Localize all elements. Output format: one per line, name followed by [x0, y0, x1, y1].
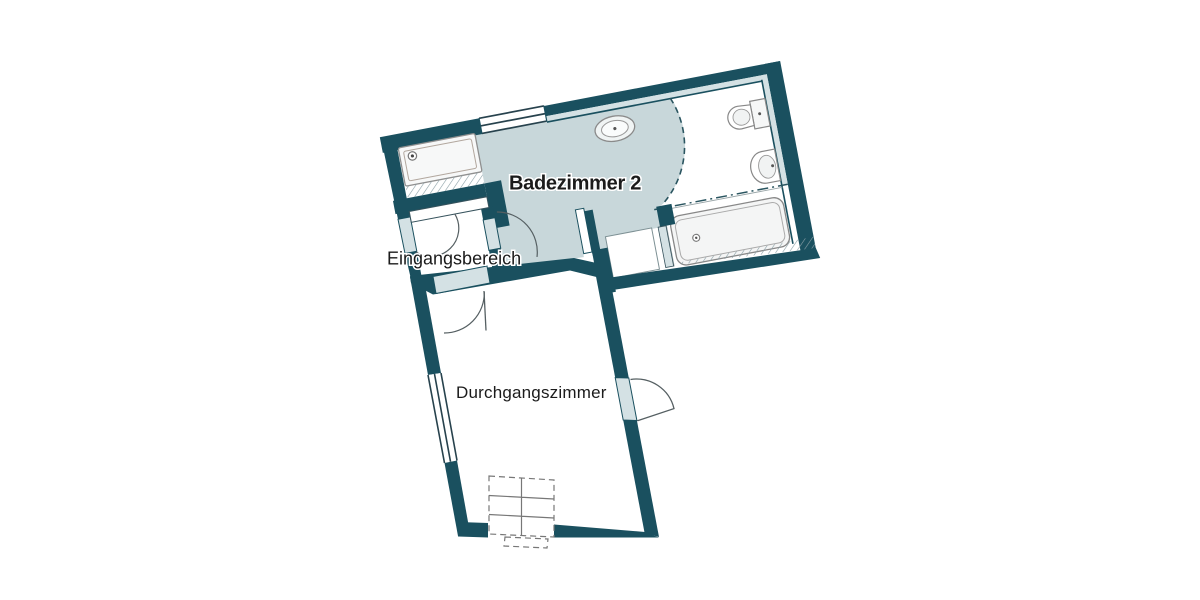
svg-text:Durchgangszimmer: Durchgangszimmer [456, 383, 607, 402]
svg-text:Badezimmer 2: Badezimmer 2 [509, 173, 641, 195]
svg-text:Eingangsbereich: Eingangsbereich [387, 249, 521, 269]
